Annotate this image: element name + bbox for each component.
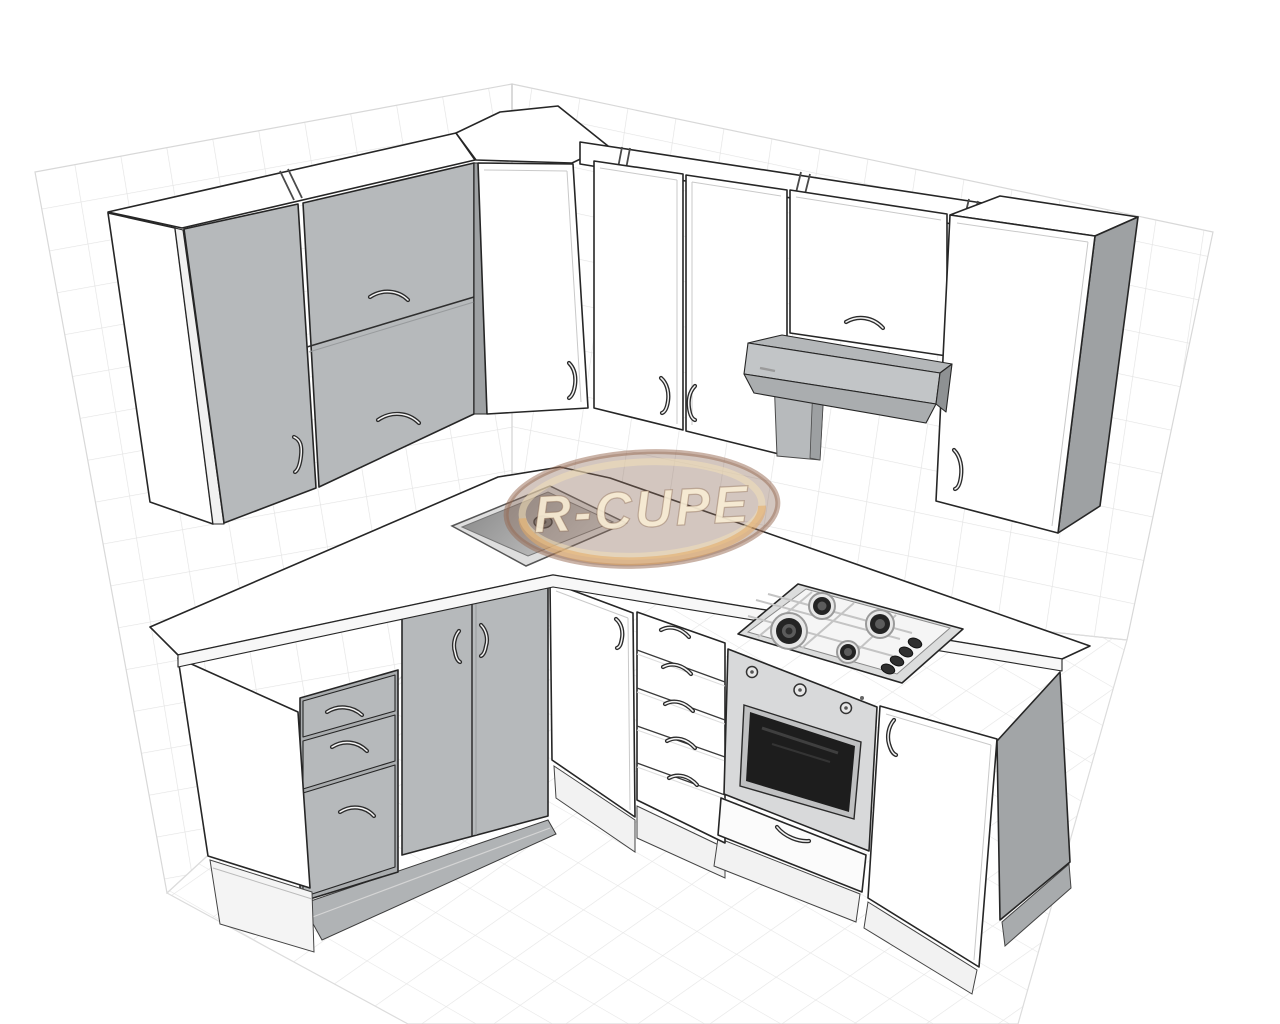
wall-cabinet-white-1[interactable] [594, 161, 683, 430]
kitchen-3d-scene: R-CUPE [0, 0, 1280, 1024]
watermark-text: R-CUPE [532, 475, 752, 544]
burner-back-left [809, 593, 835, 619]
burner-front-small [837, 641, 859, 663]
base-cabinet-two-doors-gray[interactable] [402, 586, 548, 855]
burner-front-left-large [771, 613, 807, 649]
wall-cabinet-white-2[interactable] [686, 175, 787, 456]
base-drawer-unit-3-gray[interactable] [300, 670, 398, 902]
oven-indicator-dot [860, 696, 864, 700]
corner-door[interactable] [478, 163, 588, 414]
burner-back-right [866, 610, 894, 638]
kitchen-render-canvas: R-CUPE [0, 0, 1280, 1024]
bridge-cabinet-over-hood[interactable] [790, 190, 947, 356]
